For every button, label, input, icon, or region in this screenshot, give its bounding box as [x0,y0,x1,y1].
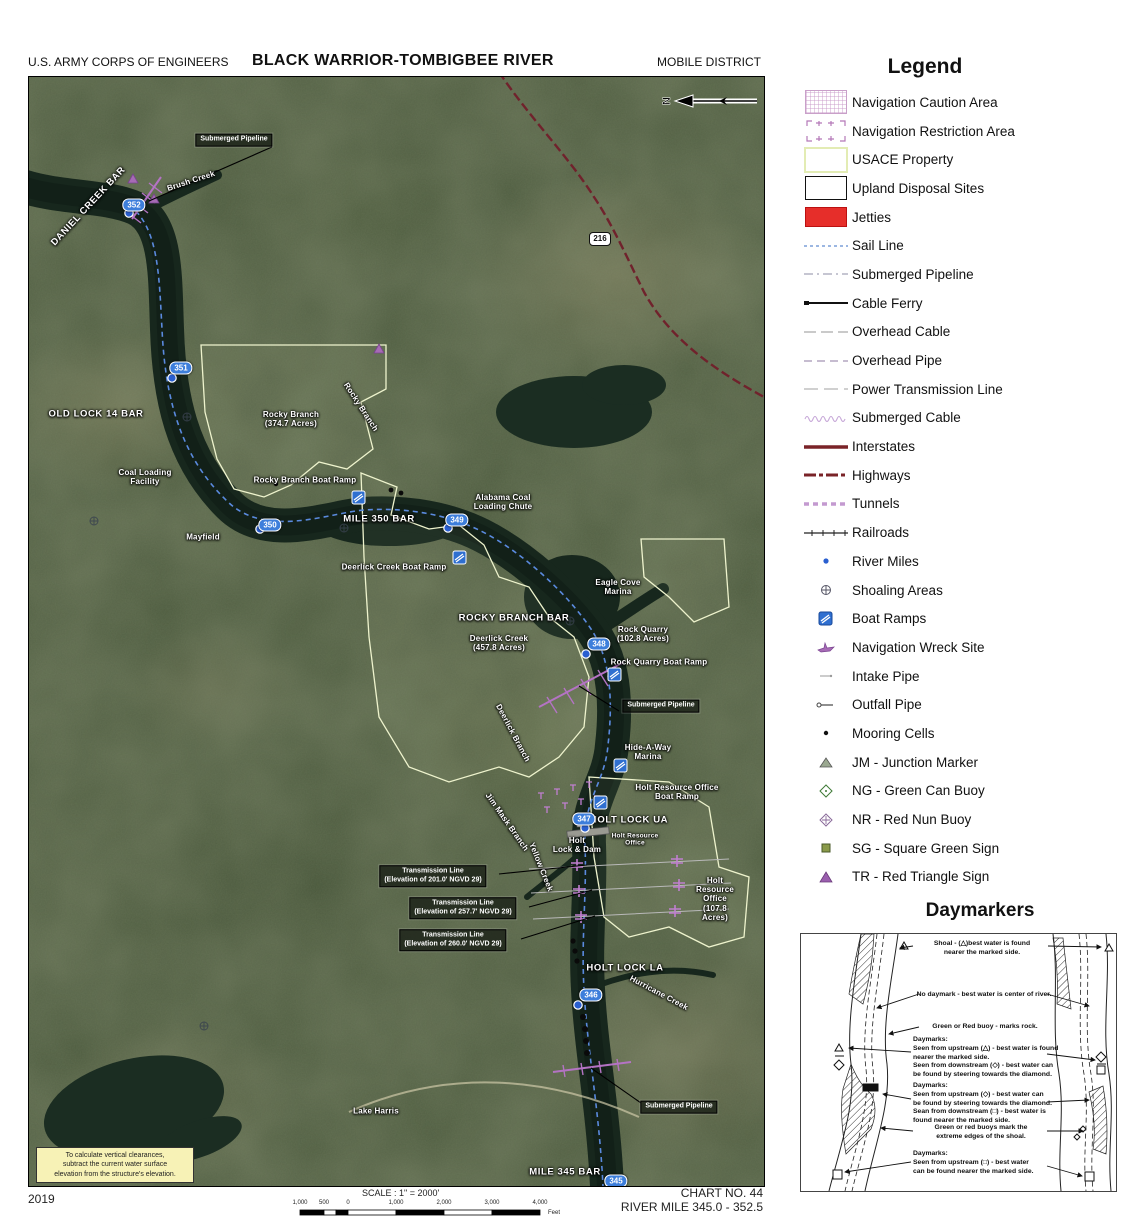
daymarkers-title: Daymarkers [840,900,1120,922]
jetties-swatch [800,207,852,227]
daymarker-note-upstream-square: Daymarks: Seen from upstream (□) - best … [913,1150,1063,1176]
legend-item: Navigation Caution Area [800,88,1128,117]
mile-marker-350: 350 [258,519,281,532]
label-coal-loading-facility: Coal Loading Facility [118,468,171,486]
red-triangle-sign-swatch [800,870,852,884]
wreck-site-swatch [800,640,852,654]
label-submerged-pipeline-mid: Submerged Pipeline [622,700,699,713]
green-can-buoy-swatch [800,783,852,799]
legend-item: Railroads [800,518,1128,547]
usace-property-swatch [800,147,852,173]
label-hide-a-way-marina: Hide-A-Way Marina [625,743,672,761]
label-holt-resource-office-boat-ramp: Holt Resource Office Boat Ramp [634,783,721,801]
legend-item: SG - Square Green Sign [800,834,1128,863]
label-rocky-branch-acres: Rocky Branch (374.7 Acres) [263,410,319,428]
river-miles-swatch [800,555,852,567]
submerged-cable-swatch [800,412,852,424]
label-transmission-line-201: Transmission Line (Elevation of 201.0' N… [379,865,486,887]
legend-panel: Navigation Caution Area Navigation Restr… [800,88,1128,891]
legend-item: NG - Green Can Buoy [800,777,1128,806]
header-district: MOBILE DISTRICT [657,55,761,69]
tunnels-swatch [800,499,852,509]
legend-item: Highways [800,461,1128,490]
label-rocky-branch-boat-ramp: Rocky Branch Boat Ramp [254,475,357,484]
label-old-lock-14-bar: OLD LOCK 14 BAR [48,410,143,421]
mile-marker-349: 349 [445,514,468,527]
label-submerged-pipeline-bottom: Submerged Pipeline [640,1101,717,1114]
legend-item: Outfall Pipe [800,690,1128,719]
upland-disposal-swatch [800,176,852,200]
label-submerged-pipeline-top: Submerged Pipeline [195,134,272,147]
legend-item: Intake Pipe [800,662,1128,691]
legend-item: Overhead Cable [800,318,1128,347]
caution-area-swatch [800,90,852,114]
label-holt-lock-ua: HOLT LOCK UA [590,816,668,827]
mile-marker-352: 352 [122,199,145,212]
restriction-area-swatch [800,119,852,143]
power-transmission-line-swatch [800,384,852,394]
label-lake-harris: Lake Harris [353,1106,399,1115]
legend-item: Overhead Pipe [800,346,1128,375]
shoaling-areas-swatch [800,583,852,597]
daymarker-note-upstream-diamond: Daymarks: Seen from upstream (◇) - best … [913,1082,1063,1126]
mile-marker-351: 351 [169,362,192,375]
legend-item: Shoaling Areas [800,576,1128,605]
legend-title: Legend [800,55,1050,79]
river-mile-range: RIVER MILE 345.0 - 352.5 [523,1200,763,1214]
label-rock-quarry-acres: Rock Quarry (102.8 Acres) [617,625,669,643]
vertical-clearance-note: To calculate vertical clearances, subtra… [36,1147,194,1183]
legend-item: NR - Red Nun Buoy [800,805,1128,834]
daymarker-note-upstream-triangle: Daymarks: Seen from upstream (△) - best … [913,1036,1063,1080]
mile-marker-347: 347 [572,813,595,826]
label-holt-lock-la: HOLT LOCK LA [586,964,663,975]
legend-item: TR - Red Triangle Sign [800,863,1128,892]
interstates-swatch [800,442,852,452]
legend-item: JM - Junction Marker [800,748,1128,777]
overhead-cable-swatch [800,327,852,337]
legend-item: Jetties [800,203,1128,232]
submerged-pipeline-swatch [800,269,852,279]
label-holt-resource-office: Holt Resource Office [612,833,659,848]
junction-marker-swatch [800,756,852,769]
legend-item: Sail Line [800,231,1128,260]
legend-item: Submerged Cable [800,404,1128,433]
railroads-swatch [800,527,852,539]
legend-item: Upland Disposal Sites [800,174,1128,203]
boat-ramps-swatch [800,611,852,627]
chart-number: CHART NO. 44 [563,1186,763,1200]
label-mile-345-bar: MILE 345 BAR [529,1168,601,1179]
daymarker-note-no-daymark: No daymark - best water is center of riv… [904,991,1064,1000]
label-deerlick-creek-acres: Deerlick Creek (457.8 Acres) [470,634,528,652]
scale-label: SCALE : 1" = 2000' [362,1188,439,1198]
label-deerlick-creek-boat-ramp: Deerlick Creek Boat Ramp [342,562,447,571]
outfall-pipe-swatch [800,700,852,710]
daymarker-note-buoys-shoal: Green or red buoys mark the extreme edge… [911,1124,1051,1142]
legend-item: Power Transmission Line [800,375,1128,404]
square-green-sign-swatch [800,841,852,855]
red-nun-buoy-swatch [800,812,852,828]
highways-swatch [800,470,852,480]
label-transmission-line-257: Transmission Line (Elevation of 257.7' N… [409,897,516,919]
daymarkers-diagram: Shoal - (△)best water is found nearer th… [800,933,1117,1192]
daymarker-note-buoy-rock: Green or Red buoy - marks rock. [910,1023,1060,1032]
legend-item: USACE Property [800,145,1128,174]
overhead-pipe-swatch [800,356,852,366]
intake-pipe-swatch [800,671,852,681]
page-title: BLACK WARRIOR-TOMBIGBEE RIVER [252,52,554,70]
label-mile-350-bar: MILE 350 BAR [343,515,415,526]
legend-item: Navigation Restriction Area [800,117,1128,146]
legend-item: River Miles [800,547,1128,576]
mile-marker-346: 346 [579,989,602,1002]
label-holt-lock-dam: Holt Lock & Dam [553,836,601,854]
label-mayfield: Mayfield [186,532,220,541]
label-coal-loading-chute: Alabama Coal Loading Chute [474,493,533,511]
daymarker-note-shoal: Shoal - (△)best water is found nearer th… [907,940,1057,958]
chart-map: N 216 DANIEL CREEK BAR Submerged Pipelin… [28,76,765,1187]
legend-item: Submerged Pipeline [800,260,1128,289]
mooring-cells-swatch [800,727,852,739]
label-transmission-line-260: Transmission Line (Elevation of 260.0' N… [399,929,506,951]
legend-item: Tunnels [800,490,1128,519]
legend-item: Navigation Wreck Site [800,633,1128,662]
legend-item: Cable Ferry [800,289,1128,318]
route-shield-216: 216 [589,232,611,246]
mile-marker-348: 348 [587,638,610,651]
chart-year: 2019 [28,1192,55,1206]
cable-ferry-swatch [800,298,852,308]
header-agency: U.S. ARMY CORPS OF ENGINEERS [28,55,228,69]
legend-item: Boat Ramps [800,604,1128,633]
compass-n-label: N [661,97,673,105]
label-eagle-cove-marina: Eagle Cove Marina [595,578,640,596]
sail-line-swatch [800,241,852,251]
label-holt-resource-office-acres: Holt Resource Office (107.8 Acres) [691,876,740,922]
legend-item: Interstates [800,432,1128,461]
legend-item: Mooring Cells [800,719,1128,748]
label-rocky-branch-bar: ROCKY BRANCH BAR [459,614,570,625]
label-rock-quarry-boat-ramp: Rock Quarry Boat Ramp [611,657,708,666]
